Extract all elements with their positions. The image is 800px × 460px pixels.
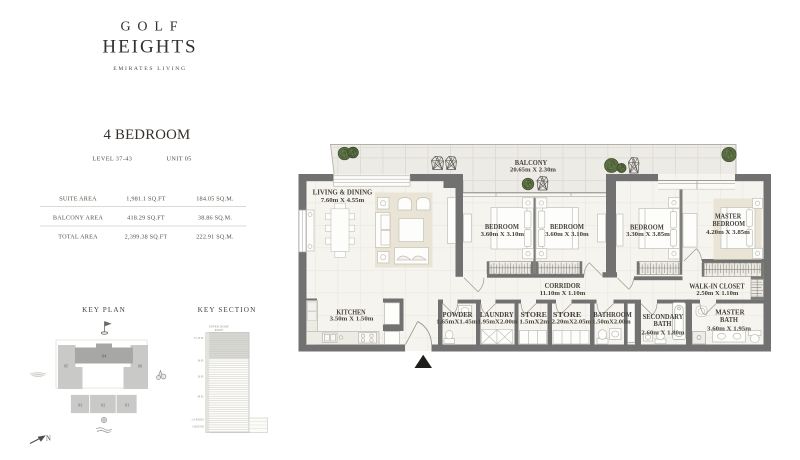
svg-text:BATH: BATH — [720, 316, 738, 324]
svg-text:ROOF: ROOF — [215, 328, 224, 332]
svg-text:02: 02 — [101, 403, 106, 408]
svg-text:BEDROOM: BEDROOM — [550, 223, 584, 231]
svg-text:1.95mX2.00m: 1.95mX2.00m — [478, 318, 519, 325]
svg-text:4.20m X 3.85m: 4.20m X 3.85m — [706, 229, 751, 236]
svg-text:20.65m X 2.30m: 20.65m X 2.30m — [510, 167, 557, 174]
svg-text:3.60m X 3.10m: 3.60m X 3.10m — [545, 231, 589, 238]
svg-text:04: 04 — [102, 354, 107, 359]
svg-text:BATH: BATH — [654, 320, 672, 328]
svg-text:1,981.1 SQ.FT: 1,981.1 SQ.FT — [126, 196, 165, 203]
svg-text:SUITE AREA: SUITE AREA — [59, 196, 97, 203]
svg-text:1.65mX1.45m: 1.65mX1.45m — [436, 318, 478, 325]
svg-text:3.50m X 1.50m: 3.50m X 1.50m — [330, 316, 375, 323]
svg-text:11.10m X 1.10m: 11.10m X 1.10m — [540, 290, 586, 297]
svg-text:03: 03 — [78, 403, 83, 408]
svg-text:EMIRATES LIVING: EMIRATES LIVING — [113, 66, 187, 72]
svg-text:1.5mX2m: 1.5mX2m — [519, 318, 550, 325]
svg-text:4 BEDROOM: 4 BEDROOM — [104, 127, 191, 143]
svg-text:36 FL: 36 FL — [198, 360, 205, 363]
svg-text:KEY PLAN: KEY PLAN — [82, 306, 126, 314]
svg-text:01: 01 — [125, 403, 130, 408]
svg-text:37-43 FL: 37-43 FL — [194, 337, 204, 340]
svg-text:BEDROOM: BEDROOM — [713, 220, 746, 228]
svg-text:26 FL: 26 FL — [198, 376, 205, 379]
svg-text:2.20mX2.05m: 2.20mX2.05m — [552, 318, 592, 325]
svg-text:2.50m X 1.10m: 2.50m X 1.10m — [696, 290, 739, 297]
svg-text:08 FL: 08 FL — [198, 396, 205, 399]
svg-text:TOTAL AREA: TOTAL AREA — [58, 234, 98, 241]
svg-text:2,399.38 SQ.FT: 2,399.38 SQ.FT — [125, 234, 168, 241]
svg-text:3.60m X 3.10m: 3.60m X 3.10m — [481, 231, 525, 238]
svg-text:HEIGHTS: HEIGHTS — [102, 37, 197, 58]
svg-text:BEDROOM: BEDROOM — [485, 223, 519, 231]
svg-text:LA PODIA: LA PODIA — [192, 419, 204, 422]
svg-text:CORRIDOR: CORRIDOR — [545, 282, 582, 290]
svg-text:418.29 SQ.FT: 418.29 SQ.FT — [127, 215, 165, 222]
svg-text:3.60m X 1.95m: 3.60m X 1.95m — [707, 325, 752, 332]
svg-text:38.86 SQ.M.: 38.86 SQ.M. — [198, 215, 232, 222]
svg-text:GOLF: GOLF — [121, 20, 185, 35]
svg-text:LIVING & DINING: LIVING & DINING — [313, 188, 373, 196]
svg-text:N: N — [46, 436, 51, 443]
svg-text:06: 06 — [138, 364, 143, 369]
svg-text:1.50mX2.00m: 1.50mX2.00m — [592, 318, 631, 325]
svg-text:222.91 SQ.M.: 222.91 SQ.M. — [196, 234, 234, 241]
svg-text:GROUND: GROUND — [193, 426, 205, 429]
svg-text:2.60m X 1.80m: 2.60m X 1.80m — [641, 330, 685, 337]
svg-text:UNIT 05: UNIT 05 — [167, 156, 192, 163]
svg-text:BALCONY AREA: BALCONY AREA — [53, 215, 103, 222]
svg-text:3.30m X 3.85m: 3.30m X 3.85m — [626, 231, 671, 238]
svg-text:184.05 SQ.M.: 184.05 SQ.M. — [196, 196, 234, 203]
svg-text:7.60m X 4.55m: 7.60m X 4.55m — [321, 197, 365, 204]
svg-text:LEVEL 37-43: LEVEL 37-43 — [93, 156, 133, 163]
svg-text:05: 05 — [64, 364, 69, 369]
svg-text:KEY SECTION: KEY SECTION — [198, 306, 257, 314]
